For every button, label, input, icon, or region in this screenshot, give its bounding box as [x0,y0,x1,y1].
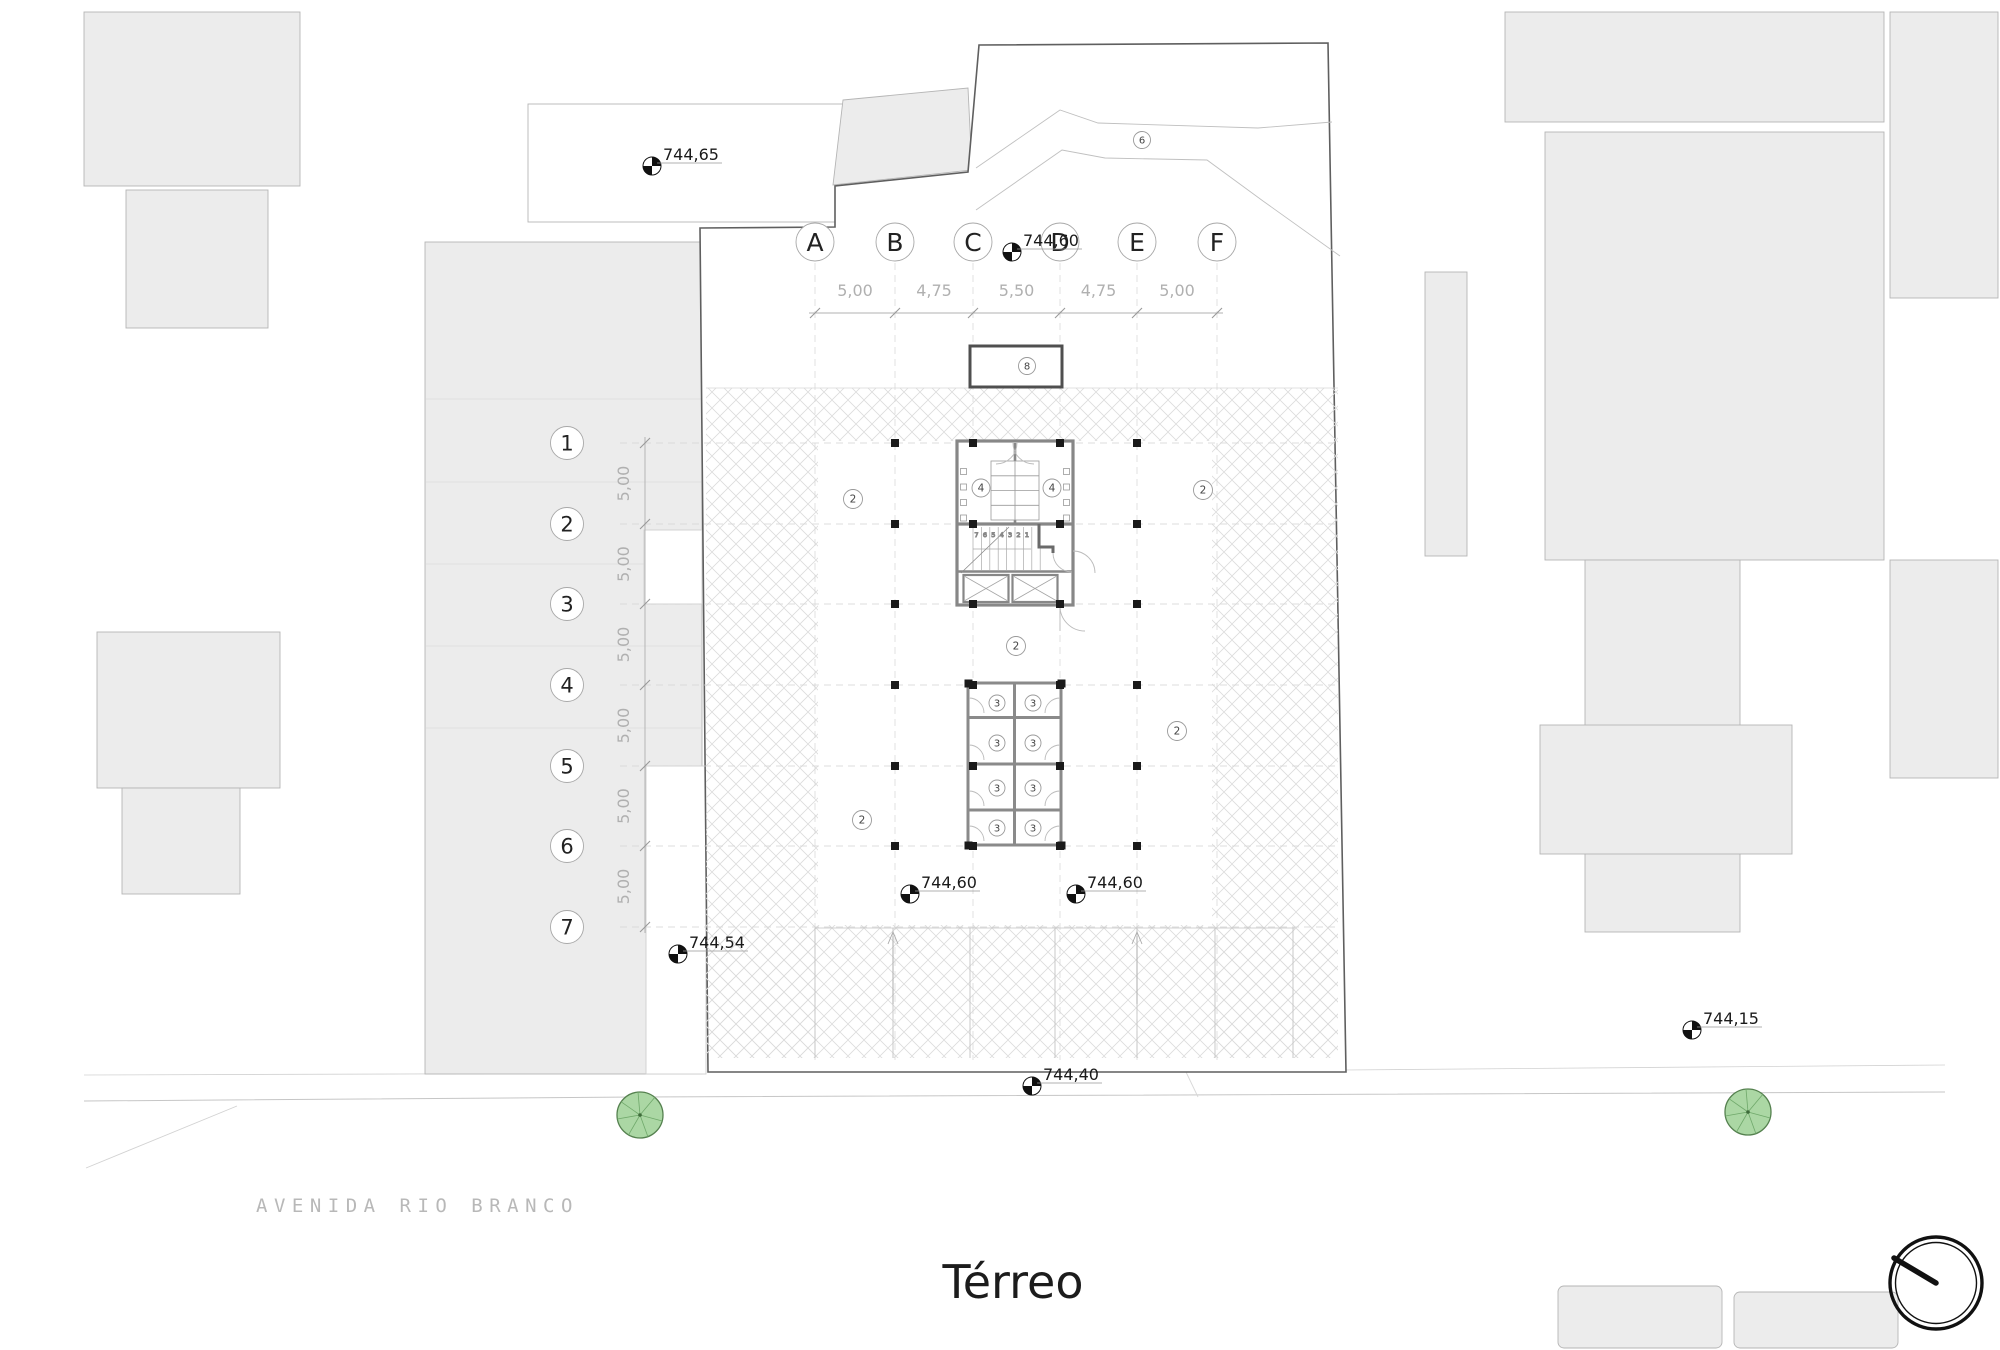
column-dimension: 4,75 [1081,281,1117,300]
column [1133,600,1141,608]
grid-bubble-row-label: 6 [560,835,573,859]
stair-tread-number: 5 [991,531,995,539]
bike-room-tag-label: 4 [1049,483,1056,495]
column [1056,681,1064,689]
grid-bubble-column-label: B [886,228,903,257]
storage-room-tag-label: 3 [994,784,1000,795]
column [891,762,899,770]
column [891,520,899,528]
grid-bubble-column-label: E [1129,228,1145,257]
open-area-tag-label: 2 [1174,726,1181,738]
core-walls: 7654321 [957,441,1095,631]
row-dimension: 5,00 [614,708,633,744]
column [1133,762,1141,770]
elevation-marker: 744,15 [1683,1009,1762,1039]
row-dimension: 5,00 [614,627,633,663]
site-plan-page: 5,004,755,504,755,005,005,005,005,005,00… [0,0,2000,1350]
planter-box [970,346,1062,387]
street-lines [84,1065,1945,1168]
storage-room-tag-label: 3 [1030,784,1036,795]
grid-bubble-column-label: C [964,228,981,257]
column [1056,439,1064,447]
storage-room-tag-label: 3 [994,699,1000,710]
grid-bubble-row-label: 3 [560,593,573,617]
column-dimension: 5,00 [1159,281,1195,300]
open-area-tag-label: 2 [1200,485,1207,497]
elevation-value: 744,54 [689,933,745,952]
storage-room-tag-label: 3 [1030,824,1036,835]
elevation-value: 744,60 [1023,231,1079,250]
column [969,439,977,447]
row-dimension: 5,00 [614,788,633,824]
column [891,681,899,689]
storage-room-tag-label: 3 [994,739,1000,750]
grid-bubble-row-label: 2 [560,513,573,537]
stair-tread-number: 3 [1008,531,1012,539]
open-area-tag-label: 2 [859,815,866,827]
storage-room-tag-label: 3 [994,824,1000,835]
column [969,600,977,608]
elevation-value: 744,15 [1703,1009,1759,1028]
elevation-value: 744,60 [1087,873,1143,892]
stair-tread-number: 7 [974,531,978,539]
floor-plan-canvas: 5,004,755,504,755,005,005,005,005,005,00… [0,0,2000,1350]
grid-bubble-row-label: 4 [560,674,573,698]
street-name: AVENIDA RIO BRANCO [256,1195,579,1217]
grid-bubble-row-label: 1 [560,432,573,456]
column-dimension: 4,75 [916,281,952,300]
column [1133,439,1141,447]
column [1056,520,1064,528]
row-dimension: 5,00 [614,546,633,582]
open-area-tag-label: 2 [1013,641,1020,653]
column-dimension: 5,50 [999,281,1035,300]
north-arrow-icon [1890,1237,1982,1329]
column [969,681,977,689]
storage-room-tag-label: 3 [1030,739,1036,750]
storage-rooms [965,680,1066,850]
row-dimension: 5,00 [614,466,633,502]
elevation-value: 744,60 [921,873,977,892]
tree-icon [617,1092,663,1138]
column [969,842,977,850]
open-area-tag-label: 2 [850,494,857,506]
column [1056,600,1064,608]
column [1133,681,1141,689]
planter-tag-label: 8 [1024,362,1030,373]
column [891,439,899,447]
column [969,762,977,770]
column [1056,762,1064,770]
column-dimension: 5,00 [837,281,873,300]
grid-bubble-column-label: F [1210,228,1224,257]
column [969,520,977,528]
row-dimension: 5,00 [614,869,633,905]
stair-tread-number: 2 [1016,531,1020,539]
column [1056,842,1064,850]
column [891,842,899,850]
stair-tread-number: 6 [983,531,987,539]
stair-tread-number: 1 [1025,531,1029,539]
column [1133,842,1141,850]
grid-bubble-row-label: 7 [560,916,573,940]
storage-room-tag-label: 3 [1030,699,1036,710]
grid-bubble-column-label: A [806,228,823,257]
bike-room-tag-label: 4 [978,483,985,495]
grid-bubble-row-label: 5 [560,755,573,779]
tree-icon [1725,1089,1771,1135]
column [1133,520,1141,528]
elevation-value: 744,40 [1043,1065,1099,1084]
elevation-value: 744,65 [663,145,719,164]
column [891,600,899,608]
plan-title: Térreo [941,1255,1083,1309]
ramp-tag-label: 6 [1139,136,1145,147]
